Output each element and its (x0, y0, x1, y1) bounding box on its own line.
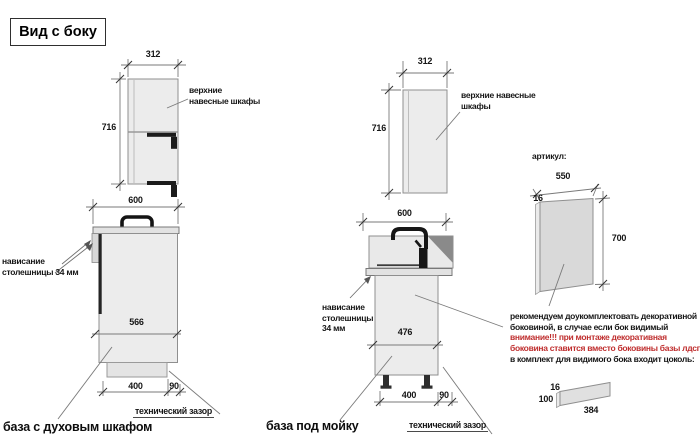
dim-width-oven-base: 600 (93, 195, 178, 205)
dim-length-plinth: 384 (577, 405, 605, 415)
dim-width-upper-left: 312 (128, 49, 178, 59)
door-handle-profile-icon (147, 181, 176, 185)
note-line: боковиной, в случае если бок видимый (510, 322, 700, 333)
countertop (93, 227, 179, 234)
adjustable-leg-icon (383, 375, 389, 386)
dim-thickness-decor-panel: 16 (530, 193, 546, 203)
dim-width-sink-base: 600 (363, 208, 446, 218)
dim-depth-oven-base: 566 (95, 317, 178, 327)
oven-base-body (99, 234, 178, 363)
dim-depth-sink-base: 476 (373, 327, 437, 337)
oven-handle-block (92, 234, 99, 263)
caption-oven-base: база с духовым шкафом (3, 420, 152, 434)
upper-cabinet-mid-body (403, 90, 447, 193)
dim-plinth-sink-base: 400 (380, 390, 438, 400)
drawing-canvas (0, 0, 700, 438)
decor-side-panel (540, 199, 593, 292)
note-line: рекомендуем доукомплектовать декоративно… (510, 311, 700, 322)
door-handle-profile-icon (171, 137, 177, 149)
leg-foot-icon (422, 386, 433, 389)
upper-cabinet-left-label: верхние навесные шкафы (189, 85, 263, 106)
page-title: Вид с боку (10, 18, 106, 46)
panel-edge-face (536, 202, 541, 295)
upper-cabinet-left-drawing (111, 59, 188, 197)
overhang-label-mid: нависание столешницы 34 мм (322, 302, 376, 334)
gap-label-left: технический зазор (133, 406, 214, 418)
gap-label-mid: технический зазор (407, 420, 488, 432)
note-line-warning: внимание!!! при монтаже декоративная (510, 332, 700, 343)
caption-sink-base: база под мойку (266, 419, 359, 433)
note-line: в комплект для видимого бока входит цоко… (510, 354, 700, 365)
dim-plinth-oven-base: 400 (103, 381, 168, 391)
dim-height-upper-mid: 716 (362, 123, 386, 133)
article-label: артикул: (532, 151, 566, 162)
page-title-text: Вид с боку (19, 24, 97, 40)
note-line-warning: боковина ставится вместо боковины базы л… (510, 343, 700, 354)
dim-height-plinth: 100 (531, 394, 553, 404)
dim-height-decor-panel: 700 (607, 233, 631, 243)
oven-door-strip (99, 234, 102, 314)
adjustable-leg-icon (424, 375, 430, 386)
dim-gap-sink-base: 90 (432, 390, 456, 400)
sink-base-body (375, 276, 438, 376)
plinth-panel (560, 383, 610, 406)
dim-thickness-plinth: 16 (548, 382, 562, 392)
upper-cabinet-mid-label: верхние навесные шкафы (461, 90, 541, 111)
dim-width-upper-mid: 312 (403, 56, 447, 66)
leg-foot-icon (381, 386, 392, 389)
faucet-body-icon (419, 248, 428, 269)
overhang-label-left: нависание столешницы 34 мм (2, 256, 82, 277)
technical-drawing-page: Вид с боку 312 716 верхние навесные шкаф… (0, 0, 700, 438)
plinth-edge-face (557, 392, 561, 408)
dim-gap-oven-base: 90 (162, 381, 186, 391)
plinth-recess (107, 363, 167, 378)
oven-top-handle-icon (122, 217, 152, 227)
countertop (366, 269, 452, 276)
upper-cabinet-mid-drawing (381, 61, 460, 200)
dim-height-upper-left: 716 (92, 122, 116, 132)
sink-bowl-edge (377, 264, 421, 266)
decor-panel-drawing (530, 184, 610, 408)
door-handle-profile-icon (147, 133, 176, 137)
dim-width-decor-panel: 550 (546, 171, 580, 181)
decor-panel-note: рекомендуем доукомплектовать декоративно… (510, 311, 700, 365)
